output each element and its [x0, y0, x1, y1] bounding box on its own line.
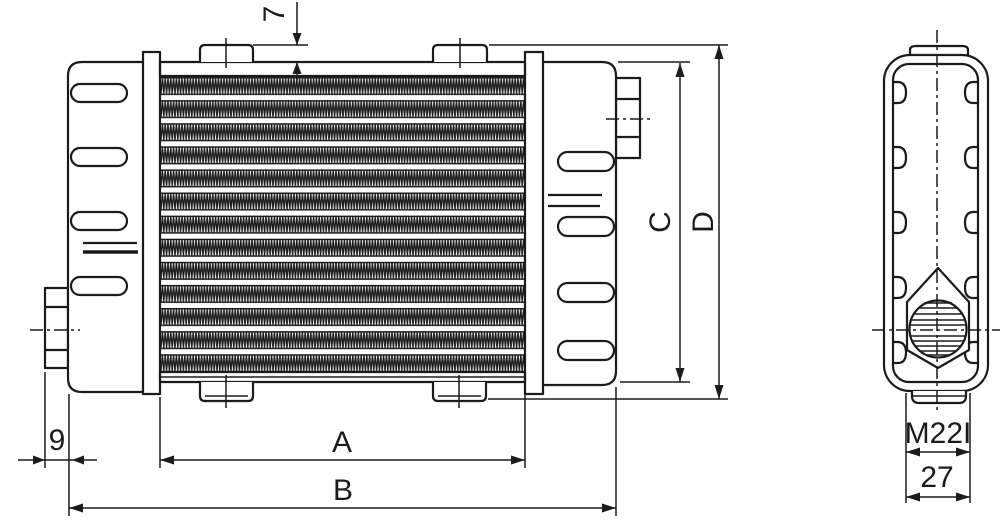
dim-label-c: C: [646, 207, 676, 237]
front-view: [30, 38, 650, 408]
dim-label-d: D: [689, 207, 719, 237]
right-port-fitting: [616, 78, 640, 158]
side-view: [872, 30, 1000, 413]
right-side-plate: [525, 52, 543, 394]
dim-label-27: 27: [917, 463, 957, 493]
core-fins: [161, 77, 524, 372]
core-top-plate: [160, 62, 525, 76]
dim-label-a: A: [325, 428, 359, 458]
left-side-plate: [143, 52, 160, 394]
side-bottom-cap: [912, 391, 966, 403]
thread-bore: [910, 301, 967, 358]
core: [160, 62, 525, 382]
side-top-cap: [910, 46, 968, 55]
technical-drawing: 7 9 A B C D M22I 27: [0, 0, 1000, 528]
left-port-fitting: [45, 288, 68, 368]
drawing-canvas: [0, 0, 1000, 528]
dim-label-7: 7: [260, 0, 290, 29]
dim-label-thread: M22I: [898, 419, 978, 449]
dim-label-b: B: [326, 476, 360, 506]
dim-label-9: 9: [40, 426, 74, 456]
